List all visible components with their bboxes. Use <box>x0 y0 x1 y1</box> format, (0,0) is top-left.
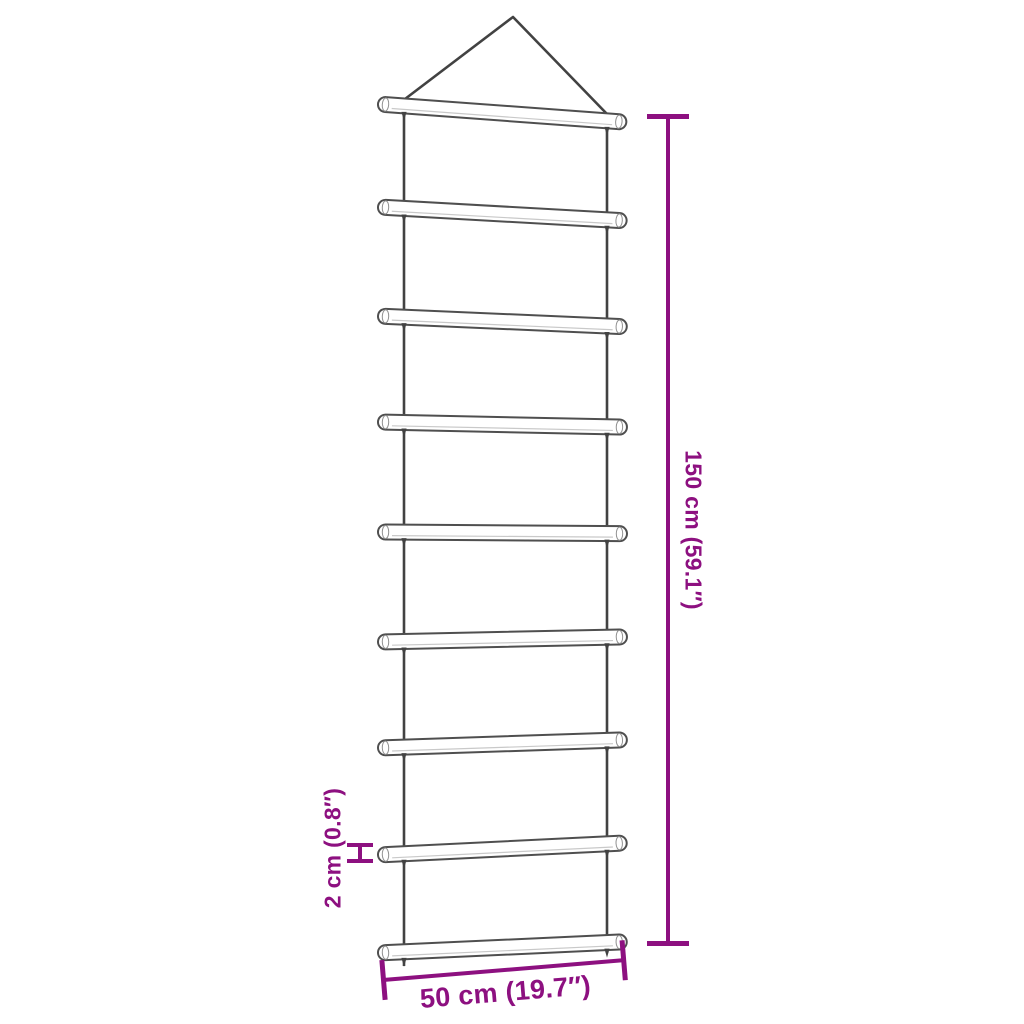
rung-3 <box>378 309 627 335</box>
thickness-dimension-tick-bottom <box>347 859 373 863</box>
rope-knot <box>604 226 609 235</box>
rope-knot <box>604 433 609 442</box>
rope-knot <box>604 949 609 958</box>
rung-9 <box>378 934 627 960</box>
rope-knot <box>604 540 609 549</box>
hanging-rope-triangle <box>405 17 607 114</box>
rung-4 <box>378 415 627 435</box>
rung-5 <box>378 525 627 542</box>
rope-knot <box>401 323 406 332</box>
rope-knot <box>604 127 609 136</box>
thickness-dimension-tick-top <box>347 843 373 847</box>
rope-knot <box>401 538 406 547</box>
rope-knot <box>604 746 609 755</box>
rope-knot <box>604 332 609 341</box>
thickness-dimension-label: 2 cm (0.8″) <box>320 788 347 908</box>
rung-1 <box>377 97 626 130</box>
rope-knot <box>401 429 406 438</box>
height-dimension-line <box>666 117 670 945</box>
rope-knot <box>401 112 406 121</box>
product-dimension-diagram: 150 cm (59.1″) 2 cm (0.8″) 50 cm (19.7″) <box>0 0 1024 1024</box>
height-dimension-tick-top <box>647 114 689 119</box>
rope-knot <box>401 214 406 223</box>
rung-2 <box>378 200 627 229</box>
height-dimension-tick-bottom <box>647 941 689 946</box>
rope-knot <box>401 753 406 762</box>
rung-7 <box>378 732 627 755</box>
rung-6 <box>378 629 627 649</box>
rope-knot <box>401 860 406 869</box>
rung-8 <box>378 835 627 862</box>
rope-knot <box>604 643 609 652</box>
rope-knot <box>401 958 406 967</box>
height-dimension-label: 150 cm (59.1″) <box>680 450 707 610</box>
rope-knot <box>401 647 406 656</box>
rope-knot <box>604 850 609 859</box>
rope-ladder-illustration <box>0 0 1024 1024</box>
